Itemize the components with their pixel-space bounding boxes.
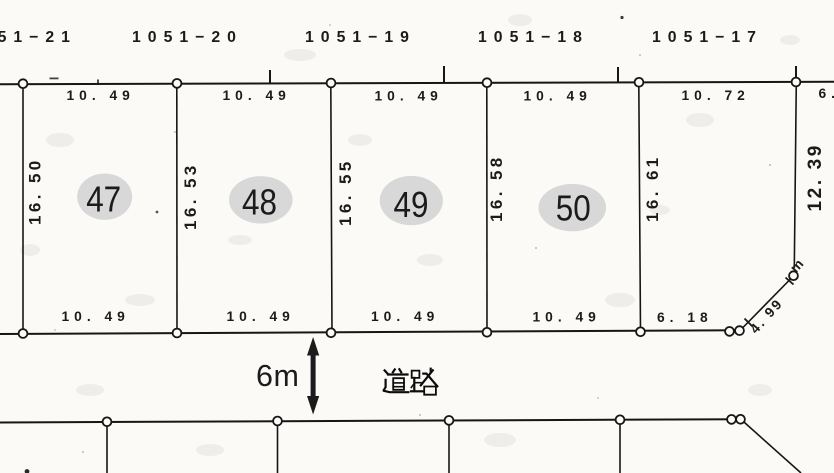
svg-text:48: 48 — [242, 182, 277, 223]
svg-text:16. 53: 16. 53 — [181, 162, 200, 230]
svg-text:10. 49: 10. 49 — [533, 310, 601, 325]
svg-text:10. 49: 10. 49 — [62, 309, 130, 324]
svg-text:6. 18: 6. 18 — [657, 310, 713, 325]
svg-text:12. 39: 12. 39 — [805, 143, 826, 211]
svg-text:1051−17: 1051−17 — [652, 29, 763, 46]
svg-text:1051−21: 1051−21 — [0, 29, 77, 46]
svg-text:1051−18: 1051−18 — [478, 29, 589, 46]
svg-text:49: 49 — [394, 184, 429, 225]
svg-text:10. 49: 10. 49 — [227, 309, 295, 324]
svg-text:10. 49: 10. 49 — [375, 89, 443, 104]
svg-text:1051−19: 1051−19 — [305, 29, 416, 46]
svg-text:16. 61: 16. 61 — [643, 154, 662, 222]
svg-text:10. 49: 10. 49 — [524, 89, 592, 104]
svg-text:6m: 6m — [256, 359, 299, 393]
svg-text:6.: 6. — [819, 86, 834, 101]
svg-text:10. 49: 10. 49 — [371, 309, 439, 324]
svg-text:10. 49: 10. 49 — [67, 88, 135, 103]
svg-text:1051−20: 1051−20 — [132, 29, 243, 46]
svg-text:16. 58: 16. 58 — [487, 154, 506, 222]
svg-text:47: 47 — [86, 179, 121, 220]
svg-text:50: 50 — [556, 188, 591, 229]
svg-text:16. 50: 16. 50 — [26, 157, 45, 225]
svg-text:16. 55: 16. 55 — [336, 158, 355, 226]
svg-text:10. 72: 10. 72 — [682, 88, 750, 103]
svg-text:10. 49: 10. 49 — [223, 88, 291, 103]
